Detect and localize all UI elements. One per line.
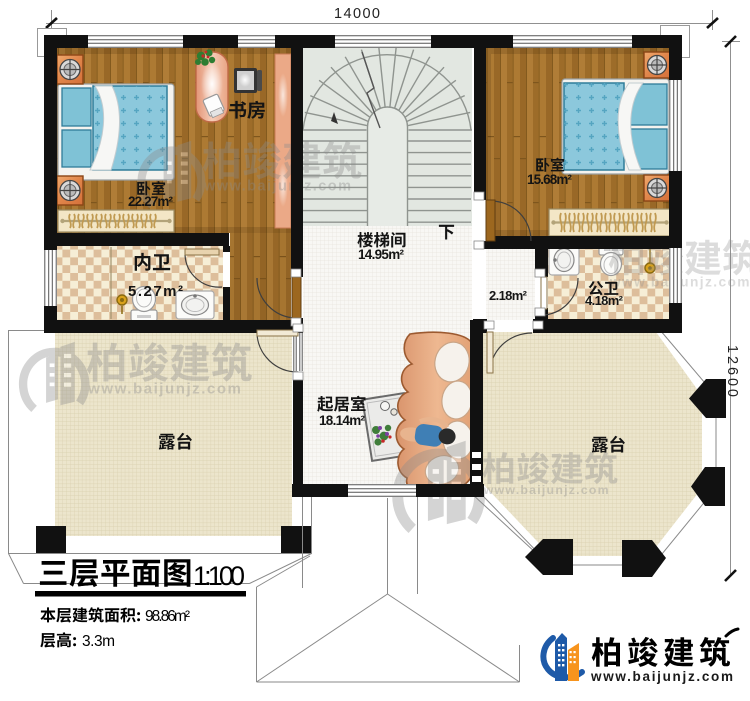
- svg-text:14.95m²: 14.95m²: [358, 247, 405, 262]
- svg-text:www.baijunjz.com: www.baijunjz.com: [87, 381, 244, 398]
- svg-text:www.baijunjz.com: www.baijunjz.com: [590, 669, 735, 684]
- svg-text:98.86m²: 98.86m²: [145, 608, 190, 625]
- svg-text:22.27m²: 22.27m²: [128, 194, 174, 209]
- svg-text:3.3m: 3.3m: [82, 633, 115, 650]
- svg-text:12600: 12600: [724, 345, 740, 397]
- svg-text:5.27m²: 5.27m²: [128, 283, 183, 300]
- svg-text:4.18m²: 4.18m²: [585, 293, 624, 308]
- svg-text:1:100: 1:100: [193, 561, 245, 591]
- svg-text:18.14m²: 18.14m²: [319, 413, 366, 428]
- svg-text:www.baijunjz.com: www.baijunjz.com: [203, 179, 354, 195]
- svg-text:www.baijunjz.com: www.baijunjz.com: [483, 483, 612, 497]
- svg-text:2.18m²: 2.18m²: [489, 288, 528, 303]
- svg-text:14000: 14000: [334, 6, 380, 22]
- svg-text:15.68m²: 15.68m²: [527, 172, 573, 187]
